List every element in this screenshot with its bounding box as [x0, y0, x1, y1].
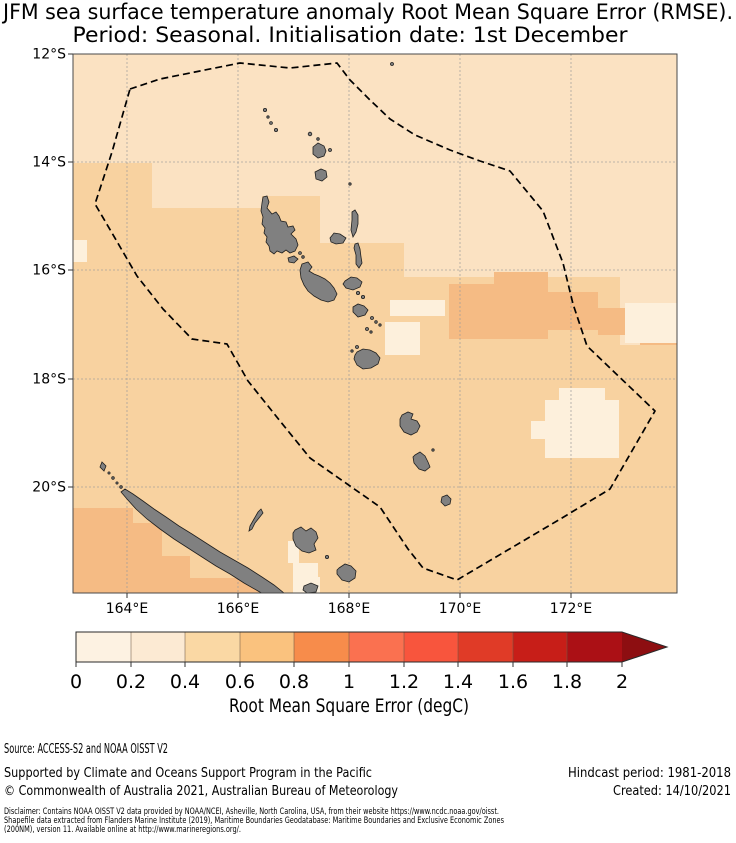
colorbar-segments [76, 632, 667, 662]
lat-label: 14°S [32, 155, 66, 171]
latitude-labels: 12°S 14°S 16°S 18°S 20°S [32, 47, 66, 496]
figure-title-line1: JFM sea surface temperature anomaly Root… [1, 0, 733, 24]
lon-label: 166°E [217, 601, 260, 617]
created-date-text: Created: 14/10/2021 [613, 784, 731, 799]
longitude-labels: 164°E 166°E 168°E 170°E 172°E [106, 601, 593, 617]
lat-label: 20°S [32, 480, 66, 496]
lat-label: 16°S [32, 263, 66, 279]
cb-tick-label: 1.4 [443, 671, 473, 693]
lon-label: 172°E [550, 601, 593, 617]
copyright-text: © Commonwealth of Australia 2021, Austra… [4, 784, 398, 799]
supported-by-text: Supported by Climate and Oceans Support … [4, 766, 372, 781]
lat-label: 18°S [32, 372, 66, 388]
colorbar-tick-labels: 0 0.2 0.4 0.6 0.8 1 1.2 1.4 1.6 1.8 2 [70, 671, 628, 693]
lon-label: 164°E [106, 601, 149, 617]
cb-tick-label: 0.2 [116, 671, 146, 693]
lat-label: 12°S [32, 47, 66, 63]
map-area [73, 54, 677, 599]
hindcast-period-text: Hindcast period: 1981-2018 [568, 766, 731, 781]
footer: Source: ACCESS-S2 and NOAA OISST V2 Supp… [4, 742, 731, 835]
cb-tick-label: 0 [70, 671, 82, 693]
cb-tick-label: 0.4 [170, 671, 200, 693]
cb-tick-label: 0.6 [225, 671, 255, 693]
colorbar-ticks [76, 662, 622, 667]
cb-tick-label: 1.2 [389, 671, 419, 693]
rmse-map-figure: JFM sea surface temperature anomaly Root… [0, 0, 736, 839]
colorbar: 0 0.2 0.4 0.6 0.8 1 1.2 1.4 1.6 1.8 2 Ro… [70, 632, 667, 717]
cb-tick-label: 0.8 [279, 671, 309, 693]
cb-tick-label: 1.8 [552, 671, 582, 693]
cb-tick-label: 1 [343, 671, 355, 693]
source-text: Source: ACCESS-S2 and NOAA OISST V2 [4, 742, 168, 757]
figure-title-line2: Period: Seasonal. Initialisation date: 1… [73, 23, 628, 47]
colorbar-extend-arrow [622, 632, 667, 662]
cb-tick-label: 2 [616, 671, 628, 693]
colorbar-axis-label: Root Mean Square Error (degC) [229, 695, 469, 717]
lon-label: 170°E [439, 601, 482, 617]
disclaimer-line-3: (200NM), version 11. Available online at… [4, 825, 241, 835]
lon-label: 168°E [328, 601, 371, 617]
cb-tick-label: 1.6 [498, 671, 528, 693]
